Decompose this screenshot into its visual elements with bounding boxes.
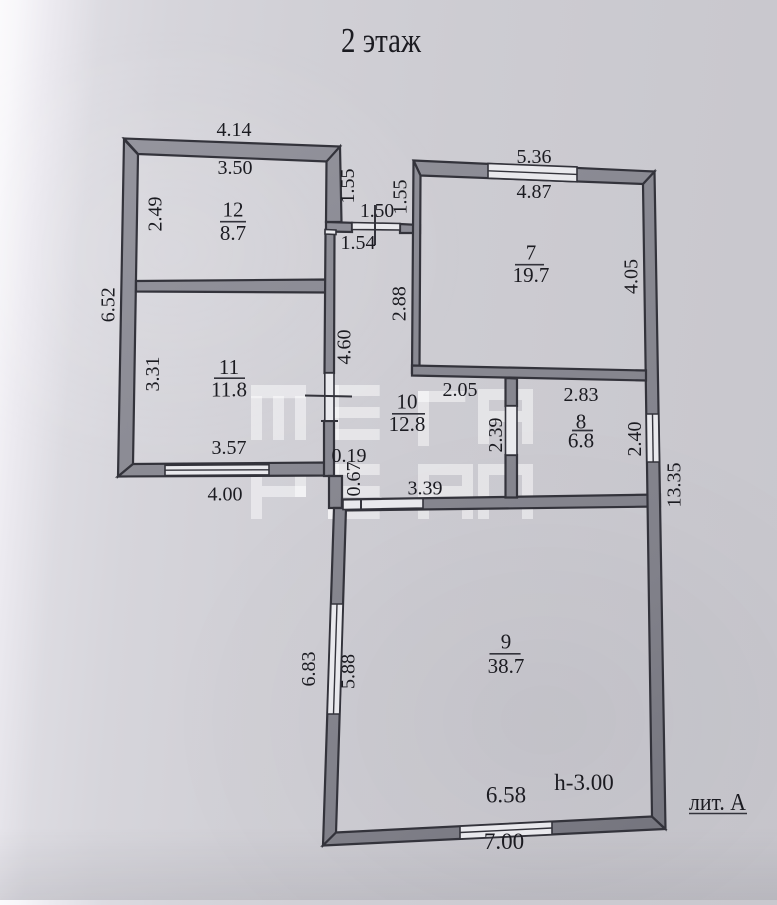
svg-text:7.00: 7.00 [484, 829, 524, 854]
svg-text:2.83: 2.83 [564, 384, 599, 406]
svg-text:6.8: 6.8 [568, 429, 594, 453]
svg-text:2.05: 2.05 [443, 379, 478, 401]
svg-text:0.67: 0.67 [343, 462, 365, 497]
svg-text:2.49: 2.49 [145, 197, 167, 232]
svg-text:10: 10 [397, 390, 418, 414]
svg-text:3.57: 3.57 [212, 437, 247, 459]
svg-text:6.52: 6.52 [97, 287, 119, 322]
svg-text:12.8: 12.8 [389, 412, 426, 436]
svg-text:3.50: 3.50 [218, 157, 253, 179]
svg-text:1.55: 1.55 [337, 169, 359, 204]
svg-text:2.39: 2.39 [485, 418, 507, 453]
svg-text:4.05: 4.05 [621, 259, 643, 294]
svg-text:6.58: 6.58 [486, 783, 526, 808]
svg-text:лит. А: лит. А [689, 790, 747, 816]
svg-text:3.39: 3.39 [408, 478, 443, 500]
svg-text:6.83: 6.83 [298, 652, 320, 687]
svg-text:38.7: 38.7 [488, 654, 525, 678]
svg-text:9: 9 [501, 630, 512, 654]
svg-text:3.31: 3.31 [142, 357, 164, 392]
svg-text:2.40: 2.40 [624, 422, 646, 457]
svg-text:7: 7 [526, 241, 537, 265]
svg-text:4.60: 4.60 [334, 330, 356, 365]
svg-text:4.87: 4.87 [517, 181, 552, 203]
svg-text:11.8: 11.8 [211, 378, 247, 402]
svg-text:5.88: 5.88 [338, 654, 360, 689]
svg-text:8.7: 8.7 [220, 221, 246, 245]
svg-text:2.88: 2.88 [389, 286, 411, 321]
svg-text:2 этаж: 2 этаж [341, 21, 422, 60]
svg-text:13.35: 13.35 [664, 463, 686, 508]
svg-text:h-3.00: h-3.00 [554, 770, 613, 795]
svg-text:5.36: 5.36 [517, 146, 552, 168]
svg-text:19.7: 19.7 [513, 263, 550, 287]
svg-text:4.00: 4.00 [208, 484, 243, 506]
svg-text:11: 11 [219, 355, 239, 379]
svg-text:12: 12 [223, 198, 244, 222]
svg-text:4.14: 4.14 [217, 119, 252, 141]
svg-text:1.55: 1.55 [390, 180, 412, 215]
svg-text:1.54: 1.54 [341, 232, 376, 254]
